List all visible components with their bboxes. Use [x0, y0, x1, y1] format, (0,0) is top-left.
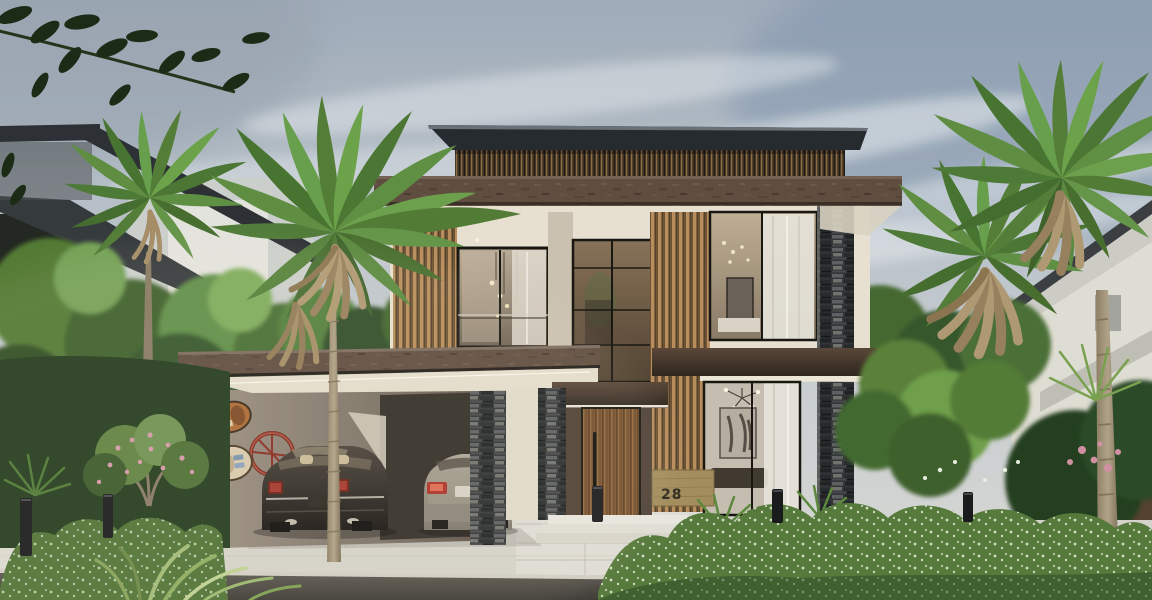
villa-exterior-render: 28	[0, 0, 1152, 600]
render-canvas: 28	[0, 0, 1152, 600]
light-overlays	[0, 0, 1152, 600]
